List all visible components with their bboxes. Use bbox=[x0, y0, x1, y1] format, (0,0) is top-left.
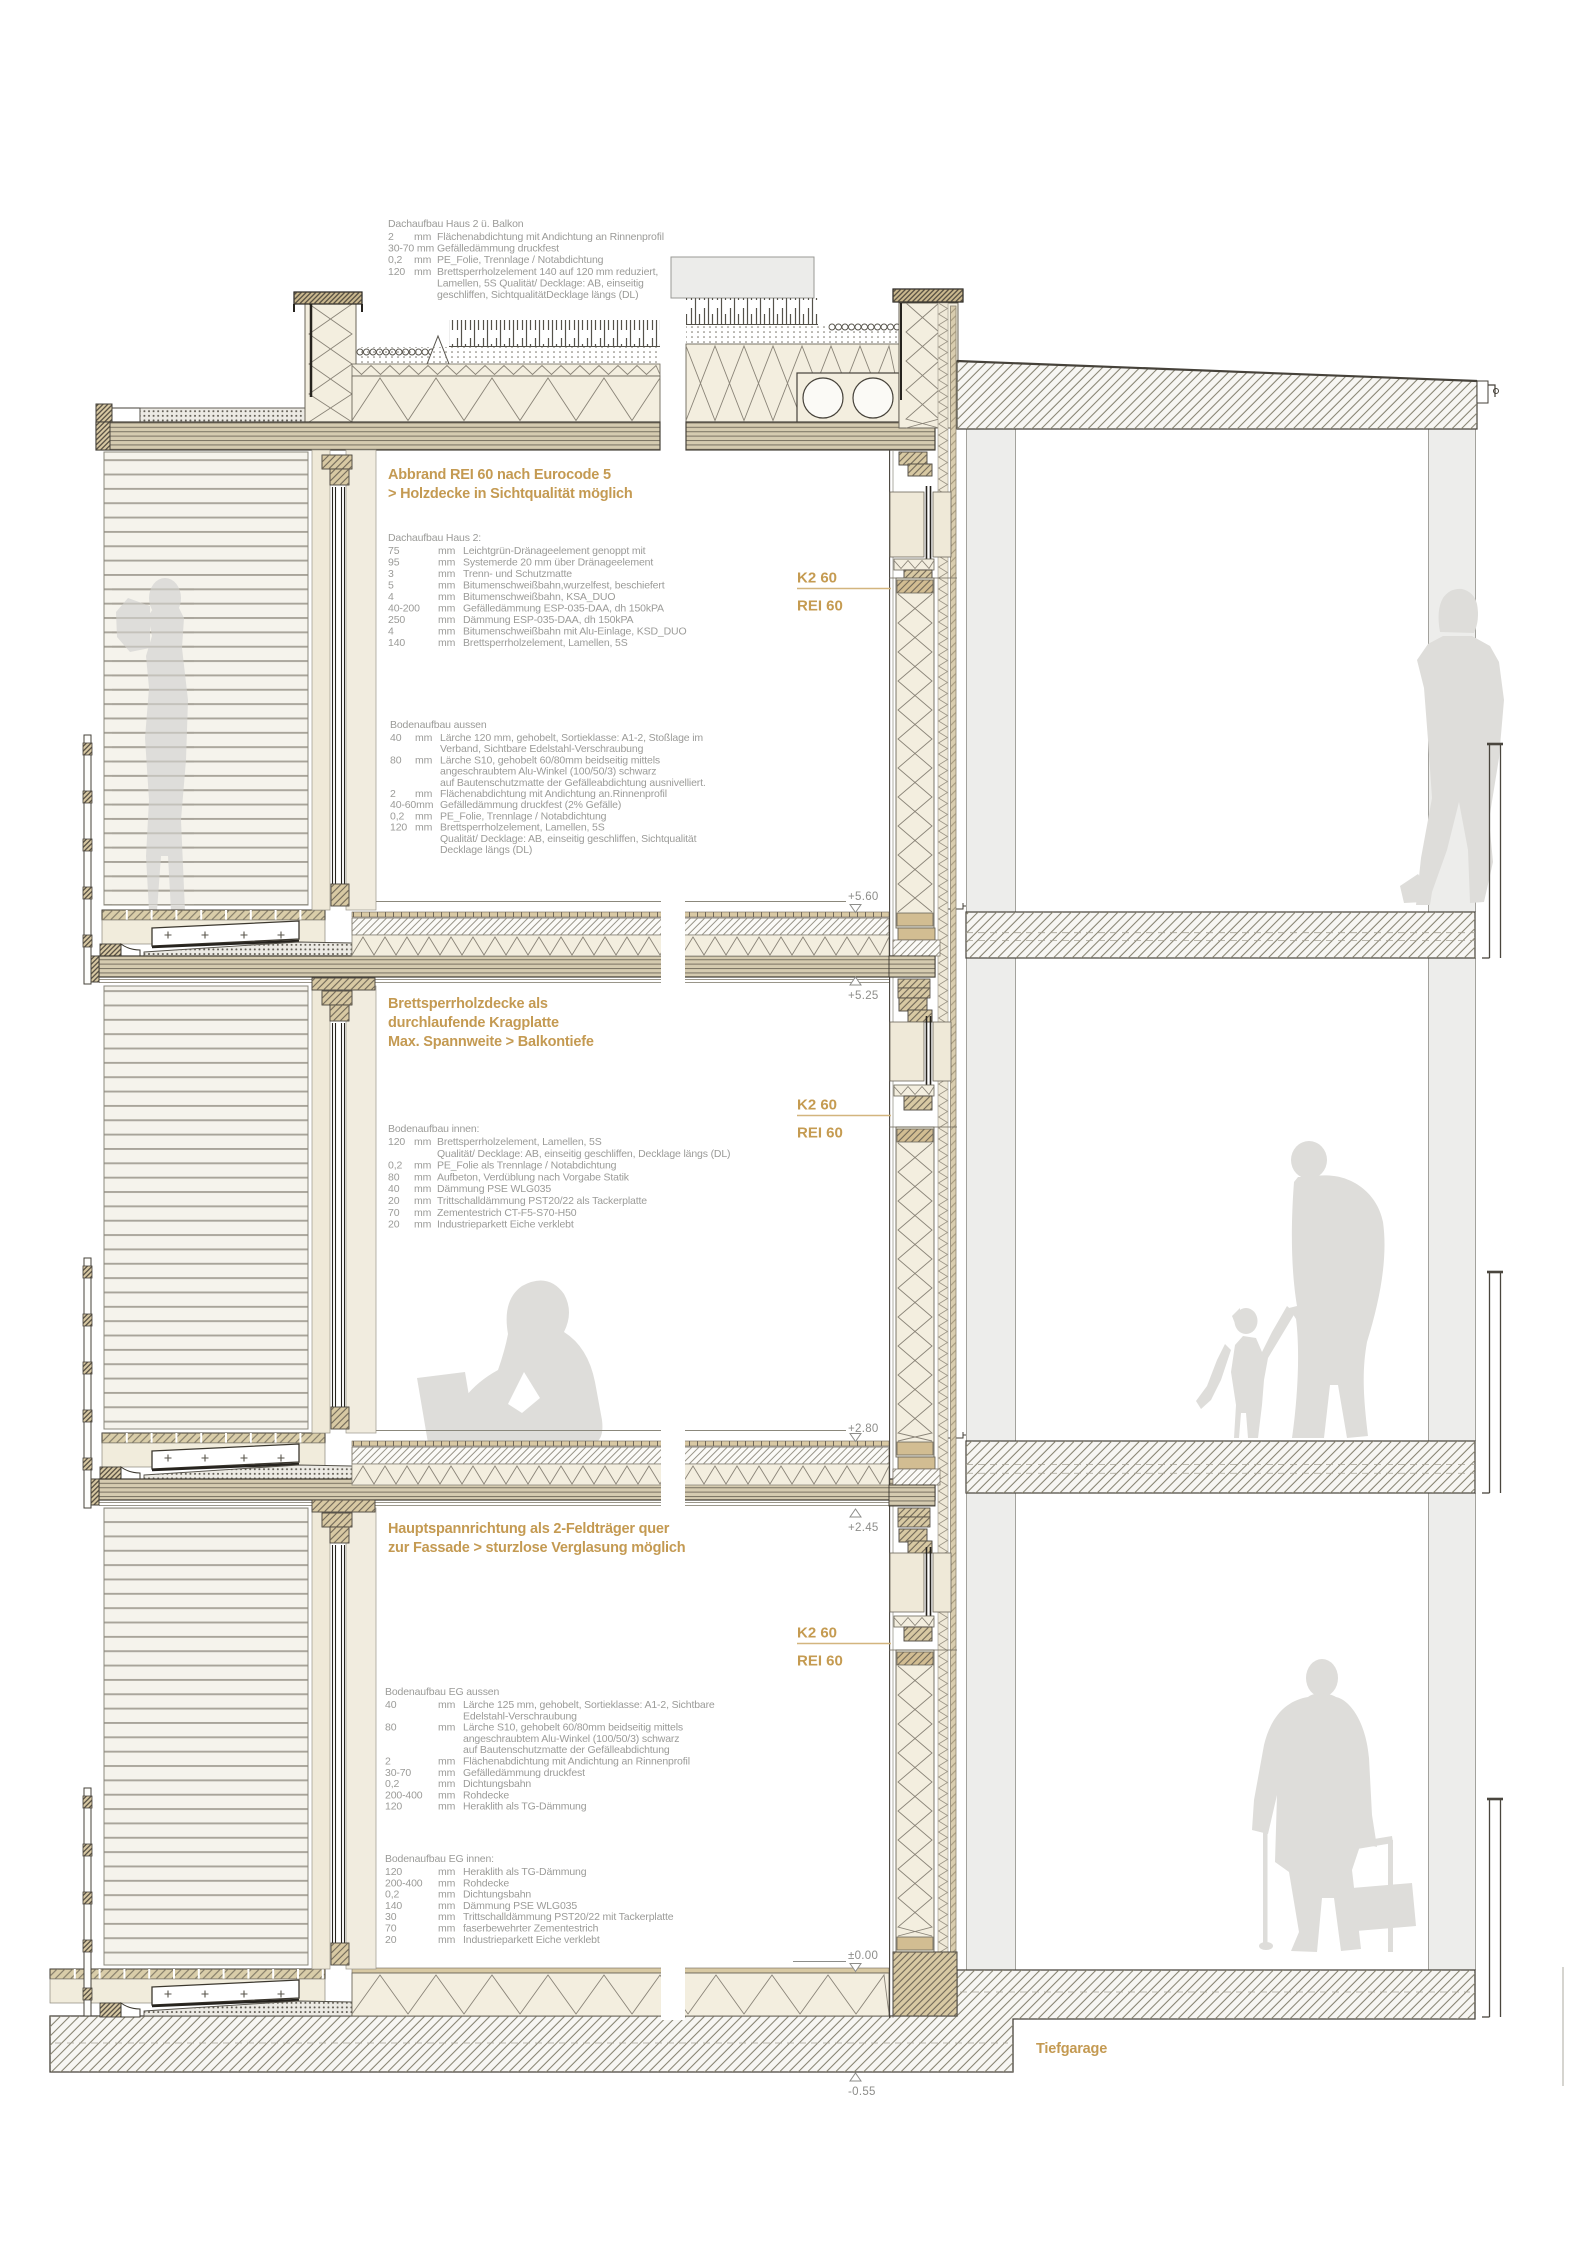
svg-text:80: 80 bbox=[390, 754, 402, 766]
svg-text:PE_Folie, Trennlage / Notabdic: PE_Folie, Trennlage / Notabdichtung bbox=[440, 810, 607, 822]
svg-text:mm: mm bbox=[438, 1889, 456, 1901]
svg-text:angeschraubtem Alu-Winkel (100: angeschraubtem Alu-Winkel (100/50/3) sch… bbox=[440, 766, 656, 778]
svg-text:120: 120 bbox=[388, 266, 405, 278]
svg-text:mm: mm bbox=[438, 1756, 456, 1768]
svg-text:mm: mm bbox=[438, 1900, 456, 1912]
svg-text:40: 40 bbox=[390, 732, 402, 744]
svg-text:Industrieparkett Eiche verkleb: Industrieparkett Eiche verklebt bbox=[437, 1219, 574, 1231]
svg-text:140: 140 bbox=[385, 1900, 402, 1912]
svg-text:Lärche 120 mm, gehobelt, Sorti: Lärche 120 mm, gehobelt, Sortieklasse: A… bbox=[440, 732, 703, 744]
svg-text:Qualität/ Decklage: AB, einsei: Qualität/ Decklage: AB, einseitig geschl… bbox=[440, 833, 697, 845]
svg-text:mm: mm bbox=[438, 591, 456, 603]
svg-text:30: 30 bbox=[385, 1911, 397, 1923]
svg-text:30-70 mm: 30-70 mm bbox=[388, 243, 434, 255]
svg-text:mm: mm bbox=[438, 1767, 456, 1779]
svg-text:Dichtungsbahn: Dichtungsbahn bbox=[463, 1889, 531, 1901]
svg-text:Brettsperrholzelement, Lamelle: Brettsperrholzelement, Lamellen, 5S bbox=[437, 1136, 602, 1148]
svg-text:0,2: 0,2 bbox=[385, 1889, 399, 1901]
svg-text:3: 3 bbox=[388, 568, 394, 580]
svg-text:mm: mm bbox=[438, 1866, 456, 1878]
svg-text:±0.00: ±0.00 bbox=[848, 1950, 878, 1962]
svg-text:mm: mm bbox=[415, 754, 433, 766]
svg-text:mm: mm bbox=[414, 266, 432, 278]
svg-text:Trittschalldämmung PST20/22 al: Trittschalldämmung PST20/22 als Tackerpl… bbox=[437, 1195, 647, 1207]
svg-text:mm: mm bbox=[414, 1171, 432, 1183]
svg-text:Brettsperrholzelement 140 auf: Brettsperrholzelement 140 auf 120 mm red… bbox=[437, 266, 658, 278]
svg-text:0,2: 0,2 bbox=[385, 1778, 399, 1790]
svg-text:2: 2 bbox=[388, 231, 394, 243]
svg-text:200-400: 200-400 bbox=[385, 1877, 423, 1889]
svg-text:Bodenaufbau aussen: Bodenaufbau aussen bbox=[390, 719, 487, 731]
svg-text:4: 4 bbox=[388, 591, 394, 603]
svg-text:+5.60: +5.60 bbox=[848, 891, 879, 903]
svg-text:200-400: 200-400 bbox=[385, 1789, 423, 1801]
svg-text:Tiefgarage: Tiefgarage bbox=[1036, 2041, 1107, 2057]
svg-text:mm: mm bbox=[438, 614, 456, 626]
svg-text:120: 120 bbox=[390, 822, 407, 834]
svg-text:120: 120 bbox=[388, 1136, 405, 1148]
svg-text:mm: mm bbox=[438, 626, 456, 638]
svg-text:Brettsperrholzelement, Lamelle: Brettsperrholzelement, Lamellen, 5S bbox=[440, 822, 605, 834]
svg-text:Lärche S10, gehobelt 60/80mm b: Lärche S10, gehobelt 60/80mm beidseitig … bbox=[440, 754, 660, 766]
svg-text:mm: mm bbox=[414, 231, 432, 243]
svg-text:40: 40 bbox=[388, 1183, 400, 1195]
svg-text:2: 2 bbox=[385, 1756, 391, 1768]
svg-text:-0.55: -0.55 bbox=[848, 2086, 876, 2098]
svg-text:Bitumenschweißbahn mit Alu-Ein: Bitumenschweißbahn mit Alu-Einlage, KSD_… bbox=[463, 626, 686, 638]
svg-text:mm: mm bbox=[438, 557, 456, 569]
svg-text:K2 60: K2 60 bbox=[797, 1097, 837, 1114]
svg-text:mm: mm bbox=[438, 1877, 456, 1889]
svg-text:Zementestrich CT-F5-S70-H50: Zementestrich CT-F5-S70-H50 bbox=[437, 1207, 577, 1219]
svg-text:40: 40 bbox=[385, 1699, 397, 1711]
svg-text:+5.25: +5.25 bbox=[848, 990, 879, 1002]
svg-text:Brettsperrholzdecke als: Brettsperrholzdecke als bbox=[388, 996, 548, 1012]
svg-text:Abbrand REI 60 nach Eurocode 5: Abbrand REI 60 nach Eurocode 5 bbox=[388, 467, 611, 483]
svg-text:mm: mm bbox=[438, 1699, 456, 1711]
svg-text:mm: mm bbox=[438, 637, 456, 649]
svg-text:geschliffen, SichtqualitätDeck: geschliffen, SichtqualitätDecklage längs… bbox=[437, 289, 638, 301]
svg-text:mm: mm bbox=[438, 568, 456, 580]
svg-text:0,2: 0,2 bbox=[388, 254, 402, 266]
svg-text:Decklage längs (DL): Decklage längs (DL) bbox=[440, 844, 532, 856]
svg-text:Lärche 125 mm, gehobelt, Sorti: Lärche 125 mm, gehobelt, Sortieklasse: A… bbox=[463, 1699, 715, 1711]
svg-text:mm: mm bbox=[415, 788, 433, 800]
svg-text:Dachaufbau Haus 2 ü. Balkon: Dachaufbau Haus 2 ü. Balkon bbox=[388, 218, 524, 230]
svg-text:mm: mm bbox=[438, 1911, 456, 1923]
svg-text:80: 80 bbox=[385, 1722, 397, 1734]
svg-text:Dämmung ESP-035-DAA, dh 150kP: Dämmung ESP-035-DAA, dh 150kPA bbox=[463, 614, 634, 626]
svg-text:Systemerde 20 mm über Dränagee: Systemerde 20 mm über Dränageelement bbox=[463, 557, 653, 569]
svg-text:Qualität/ Decklage: AB, einsei: Qualität/ Decklage: AB, einseitig geschl… bbox=[437, 1148, 730, 1160]
svg-text:mm: mm bbox=[438, 1789, 456, 1801]
svg-text:Dachaufbau Haus 2:: Dachaufbau Haus 2: bbox=[388, 532, 481, 544]
svg-text:Bodenaufbau EG aussen: Bodenaufbau EG aussen bbox=[385, 1686, 500, 1698]
svg-text:5: 5 bbox=[388, 580, 394, 592]
svg-text:REI 60: REI 60 bbox=[797, 1653, 843, 1670]
svg-text:Heraklith als TG-Dämmung: Heraklith als TG-Dämmung bbox=[463, 1866, 587, 1878]
svg-text:mm: mm bbox=[414, 1219, 432, 1231]
svg-text:Heraklith als TG-Dämmung: Heraklith als TG-Dämmung bbox=[463, 1801, 587, 1813]
svg-text:mm: mm bbox=[414, 1136, 432, 1148]
svg-text:faserbewehrter Zementestrich: faserbewehrter Zementestrich bbox=[463, 1923, 599, 1935]
svg-text:mm: mm bbox=[414, 1195, 432, 1207]
svg-text:2: 2 bbox=[390, 788, 396, 800]
svg-text:mm: mm bbox=[438, 1778, 456, 1790]
svg-text:mm: mm bbox=[415, 822, 433, 834]
svg-text:auf Bautenschutzmatte der Gefä: auf Bautenschutzmatte der Gefälleabdicht… bbox=[463, 1744, 670, 1756]
svg-text:Bitumenschweißbahn, KSA_DUO: Bitumenschweißbahn, KSA_DUO bbox=[463, 591, 615, 603]
svg-text:Dichtungsbahn: Dichtungsbahn bbox=[463, 1778, 531, 1790]
svg-text:0,2: 0,2 bbox=[388, 1160, 402, 1172]
svg-text:PE_Folie als Trennlage / Notab: PE_Folie als Trennlage / Notabdichtung bbox=[437, 1160, 617, 1172]
svg-text:0,2: 0,2 bbox=[390, 810, 404, 822]
svg-text:Bodenaufbau innen:: Bodenaufbau innen: bbox=[388, 1123, 479, 1135]
svg-text:angeschraubtem Alu-Winkel (100: angeschraubtem Alu-Winkel (100/50/3) sch… bbox=[463, 1733, 679, 1745]
svg-text:70: 70 bbox=[385, 1923, 397, 1935]
svg-text:4: 4 bbox=[388, 626, 394, 638]
svg-text:Trittschalldämmung PST20/22 mi: Trittschalldämmung PST20/22 mit Tackerpl… bbox=[463, 1911, 674, 1923]
svg-text:Dämmung PSE WLG035: Dämmung PSE WLG035 bbox=[437, 1183, 551, 1195]
svg-text:40-60mm: 40-60mm bbox=[390, 799, 434, 811]
svg-text:> Holzdecke in Sichtqualität m: > Holzdecke in Sichtqualität möglich bbox=[388, 486, 633, 502]
svg-text:Dämmung PSE WLG035: Dämmung PSE WLG035 bbox=[463, 1900, 577, 1912]
svg-text:mm: mm bbox=[414, 1183, 432, 1195]
svg-text:Leichtgrün-Dränageelement geno: Leichtgrün-Dränageelement genoppt mit bbox=[463, 545, 646, 557]
svg-text:Flächenabdichtung mit Andicht: Flächenabdichtung mit Andichtung an Rinn… bbox=[437, 231, 664, 243]
svg-text:75: 75 bbox=[388, 545, 400, 557]
svg-text:Rohdecke: Rohdecke bbox=[463, 1789, 509, 1801]
svg-text:Lärche S10, gehobelt 60/80mm b: Lärche S10, gehobelt 60/80mm beidseitig … bbox=[463, 1722, 683, 1734]
svg-text:mm: mm bbox=[438, 580, 456, 592]
svg-text:mm: mm bbox=[438, 545, 456, 557]
svg-text:Gefälledämmung druckfest: Gefälledämmung druckfest bbox=[437, 243, 559, 255]
svg-text:Hauptspannrichtung als 2-Feldt: Hauptspannrichtung als 2-Feldträger quer bbox=[388, 1521, 670, 1537]
svg-text:mm: mm bbox=[438, 1722, 456, 1734]
svg-text:mm: mm bbox=[415, 732, 433, 744]
svg-text:Flächenabdichtung mit Andicht: Flächenabdichtung mit Andichtung an Rinn… bbox=[463, 1756, 690, 1768]
svg-text:mm: mm bbox=[438, 1934, 456, 1946]
svg-text:Edelstahl-Verschraubung: Edelstahl-Verschraubung bbox=[463, 1710, 577, 1722]
svg-text:auf Bautenschutzmatte der Gefä: auf Bautenschutzmatte der Gefälleabdicht… bbox=[440, 777, 706, 789]
svg-text:70: 70 bbox=[388, 1207, 400, 1219]
svg-text:Gefälledämmung druckfest (2% G: Gefälledämmung druckfest (2% Gefälle) bbox=[440, 799, 621, 811]
svg-text:+2.45: +2.45 bbox=[848, 1522, 879, 1534]
svg-text:Trenn- und Schutzmatte: Trenn- und Schutzmatte bbox=[463, 568, 572, 580]
svg-text:40-200: 40-200 bbox=[388, 603, 420, 615]
svg-text:mm: mm bbox=[415, 810, 433, 822]
svg-text:mm: mm bbox=[414, 1207, 432, 1219]
svg-text:zur Fassade > sturzlose Vergla: zur Fassade > sturzlose Verglasung mögli… bbox=[388, 1540, 685, 1556]
svg-text:REI 60: REI 60 bbox=[797, 598, 843, 615]
svg-text:Verband, Sichtbare Edelstahl-V: Verband, Sichtbare Edelstahl-Verschraubu… bbox=[440, 743, 644, 755]
svg-text:mm: mm bbox=[414, 254, 432, 266]
svg-text:Lamellen, 5S Qualität/ Decklag: Lamellen, 5S Qualität/ Decklage: AB, ein… bbox=[437, 277, 644, 289]
svg-text:Rohdecke: Rohdecke bbox=[463, 1877, 509, 1889]
svg-text:Industrieparkett Eiche verkleb: Industrieparkett Eiche verklebt bbox=[463, 1934, 600, 1946]
svg-text:Aufbeton, Verdüblung nach Vorg: Aufbeton, Verdüblung nach Vorgabe Statik bbox=[437, 1171, 630, 1183]
svg-text:mm: mm bbox=[414, 1160, 432, 1172]
svg-text:120: 120 bbox=[385, 1866, 402, 1878]
svg-text:Bodenaufbau EG innen:: Bodenaufbau EG innen: bbox=[385, 1853, 494, 1865]
svg-text:120: 120 bbox=[385, 1801, 402, 1813]
svg-text:80: 80 bbox=[388, 1171, 400, 1183]
svg-text:Brettsperrholzelement, Lamelle: Brettsperrholzelement, Lamellen, 5S bbox=[463, 637, 628, 649]
svg-text:20: 20 bbox=[385, 1934, 397, 1946]
svg-text:mm: mm bbox=[438, 603, 456, 615]
svg-text:Gefälledämmung druckfest: Gefälledämmung druckfest bbox=[463, 1767, 585, 1779]
svg-text:20: 20 bbox=[388, 1219, 400, 1231]
svg-text:REI 60: REI 60 bbox=[797, 1125, 843, 1142]
svg-text:mm: mm bbox=[438, 1923, 456, 1935]
svg-text:140: 140 bbox=[388, 637, 405, 649]
svg-text:Bitumenschweißbahn,wurzelfest,: Bitumenschweißbahn,wurzelfest, beschiefe… bbox=[463, 580, 665, 592]
svg-text:K2 60: K2 60 bbox=[797, 570, 837, 587]
svg-text:20: 20 bbox=[388, 1195, 400, 1207]
svg-text:Flächenabdichtung mit Andicht: Flächenabdichtung mit Andichtung an.Rinn… bbox=[440, 788, 667, 800]
svg-text:K2 60: K2 60 bbox=[797, 1625, 837, 1642]
svg-text:95: 95 bbox=[388, 557, 400, 569]
svg-text:PE_Folie, Trennlage / Notabdic: PE_Folie, Trennlage / Notabdichtung bbox=[437, 254, 604, 266]
svg-text:Gefälledämmung ESP-035-DAA, dh: Gefälledämmung ESP-035-DAA, dh 150kPA bbox=[463, 603, 664, 615]
svg-text:30-70: 30-70 bbox=[385, 1767, 411, 1779]
svg-text:durchlaufende Kragplatte: durchlaufende Kragplatte bbox=[388, 1015, 559, 1031]
svg-text:250: 250 bbox=[388, 614, 405, 626]
svg-text:mm: mm bbox=[438, 1801, 456, 1813]
svg-text:Max. Spannweite > Balkontiefe: Max. Spannweite > Balkontiefe bbox=[388, 1034, 594, 1050]
